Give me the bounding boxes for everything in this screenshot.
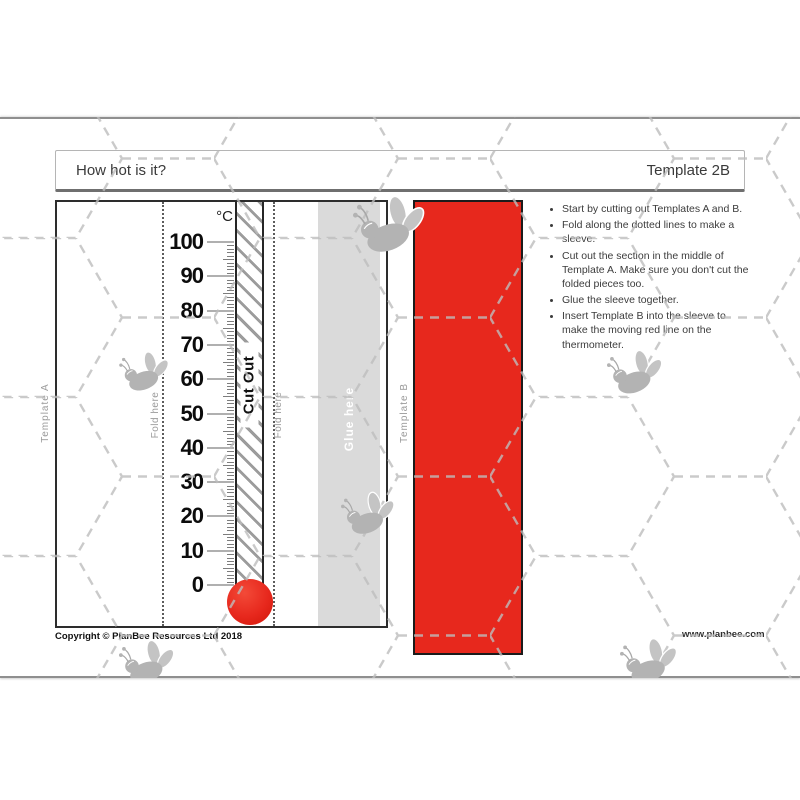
scale-minor-tick (227, 513, 234, 514)
scale-minor-tick (223, 328, 234, 329)
scale-minor-tick (227, 458, 234, 459)
scale-minor-tick (223, 362, 234, 363)
instruction-item: Glue the sleeve together. (562, 293, 750, 307)
scale-minor-tick (223, 568, 234, 569)
scale-minor-tick (227, 492, 234, 493)
scale-minor-tick (227, 575, 234, 576)
scale-degree-label: 70 (143, 331, 203, 359)
scale-minor-tick (227, 287, 234, 288)
scale-minor-tick (227, 389, 234, 390)
scale-minor-tick (227, 479, 234, 480)
scale-minor-tick (227, 537, 234, 538)
scale-minor-tick (227, 321, 234, 322)
scale-minor-tick (227, 249, 234, 250)
scale-minor-tick (227, 263, 234, 264)
scale-minor-tick (227, 407, 234, 408)
scale-minor-tick (227, 441, 234, 442)
scale-minor-tick (227, 506, 234, 507)
scale-minor-tick (227, 317, 234, 318)
scale-minor-tick (227, 280, 234, 281)
scale-minor-tick (227, 571, 234, 572)
scale-major-line (207, 413, 234, 415)
scale-minor-tick (227, 376, 234, 377)
scale-minor-tick (227, 444, 234, 445)
scale-minor-tick (227, 331, 234, 332)
instruction-item: Fold along the dotted lines to make a sl… (562, 218, 750, 246)
scale-minor-tick (227, 520, 234, 521)
scale-minor-tick (227, 352, 234, 353)
scale-minor-tick (227, 403, 234, 404)
scale-minor-tick (227, 424, 234, 425)
scale-minor-tick (227, 434, 234, 435)
scale-minor-tick (227, 314, 234, 315)
scale-minor-tick (227, 496, 234, 497)
scale-minor-tick (223, 396, 234, 397)
scale-minor-tick (227, 540, 234, 541)
scale-minor-tick (227, 462, 234, 463)
scale-minor-tick (227, 451, 234, 452)
scale-minor-tick (227, 393, 234, 394)
scale-minor-tick (227, 578, 234, 579)
scale-degree-label: 60 (143, 365, 203, 393)
scale-major-line (207, 550, 234, 552)
template-a-box: Glue here Fold here Fold here °C 1009080… (55, 200, 388, 628)
instructions-list: Start by cutting out Templates A and B. … (548, 202, 750, 354)
scale-minor-tick (227, 420, 234, 421)
scale-unit-label: °C (143, 208, 233, 225)
scale-minor-tick (227, 348, 234, 349)
scale-minor-tick (227, 438, 234, 439)
scale-degree-label: 0 (143, 571, 203, 599)
scale-major-line (207, 344, 234, 346)
template-a-label: Template A (39, 368, 53, 458)
template-b-red-strip (413, 200, 523, 655)
scale-minor-tick (227, 472, 234, 473)
instruction-item: Insert Template B into the sleeve to mak… (562, 309, 750, 352)
website-text: www.planbee.com (682, 629, 765, 640)
scale-minor-tick (227, 386, 234, 387)
worksheet-page: How hot is it? Template 2B Template A Gl… (0, 0, 800, 800)
scale-degree-label: 30 (143, 468, 203, 496)
scale-major-line (207, 378, 234, 380)
scale-degree-label: 20 (143, 502, 203, 530)
scale-minor-tick (227, 383, 234, 384)
scale-major-line (207, 310, 234, 312)
scale-minor-tick (227, 372, 234, 373)
scale-major-line (207, 447, 234, 449)
scale-minor-tick (227, 266, 234, 267)
scale-minor-tick (227, 355, 234, 356)
thermometer-bulb (227, 579, 273, 625)
copyright-text: Copyright © PlanBee Resources Ltd 2018 (55, 631, 242, 642)
scale-minor-tick (227, 273, 234, 274)
scale-major-line (207, 275, 234, 277)
scale-degree-label: 10 (143, 537, 203, 565)
scale-minor-tick (227, 489, 234, 490)
page-title: How hot is it? (76, 162, 166, 179)
scale-minor-tick (227, 283, 234, 284)
scale-minor-tick (227, 269, 234, 270)
scale-minor-tick (227, 365, 234, 366)
scale-minor-tick (227, 256, 234, 257)
instruction-item: Start by cutting out Templates A and B. (562, 202, 750, 216)
scale-minor-tick (227, 427, 234, 428)
scale-minor-tick (227, 527, 234, 528)
template-number-label: Template 2B (647, 162, 730, 179)
scale-minor-tick (223, 499, 234, 500)
scale-minor-tick (227, 400, 234, 401)
scale-minor-tick (223, 431, 234, 432)
scale-major-line (207, 241, 234, 243)
template-b-label: Template B (398, 368, 412, 458)
scale-minor-tick (227, 547, 234, 548)
scale-minor-tick (227, 530, 234, 531)
cut-out-label: Cut Out (241, 343, 259, 428)
scale-degree-label: 90 (143, 262, 203, 290)
scale-minor-tick (223, 259, 234, 260)
scale-minor-tick (227, 245, 234, 246)
scale-minor-tick (227, 544, 234, 545)
scale-minor-tick (227, 335, 234, 336)
scale-minor-tick (227, 341, 234, 342)
header-bar: How hot is it? Template 2B (55, 150, 745, 192)
scale-minor-tick (227, 300, 234, 301)
thermometer-scale: °C 1009080706050403020100 (57, 202, 386, 626)
scale-minor-tick (227, 252, 234, 253)
scale-minor-tick (227, 554, 234, 555)
scale-minor-tick (227, 558, 234, 559)
scale-minor-tick (223, 465, 234, 466)
scale-minor-tick (227, 582, 234, 583)
scale-minor-tick (227, 369, 234, 370)
scale-degree-label: 80 (143, 297, 203, 325)
scale-minor-tick (227, 503, 234, 504)
scale-minor-tick (227, 510, 234, 511)
scale-minor-tick (227, 307, 234, 308)
scale-minor-tick (227, 324, 234, 325)
scale-minor-tick (227, 561, 234, 562)
scale-minor-tick (227, 455, 234, 456)
scale-degree-label: 50 (143, 400, 203, 428)
scale-minor-tick (227, 297, 234, 298)
scale-minor-tick (227, 486, 234, 487)
scale-minor-tick (227, 417, 234, 418)
scale-minor-tick (227, 304, 234, 305)
scale-minor-tick (227, 338, 234, 339)
scale-minor-tick (227, 475, 234, 476)
instruction-item: Cut out the section in the middle of Tem… (562, 249, 750, 292)
scale-major-line (207, 584, 234, 586)
scale-minor-tick (227, 290, 234, 291)
scale-minor-tick (227, 359, 234, 360)
scale-degree-label: 100 (143, 228, 203, 256)
scale-minor-tick (227, 468, 234, 469)
scale-major-line (207, 481, 234, 483)
scale-degree-label: 40 (143, 434, 203, 462)
scale-minor-tick (223, 534, 234, 535)
scale-minor-tick (223, 293, 234, 294)
scale-major-line (207, 515, 234, 517)
scale-minor-tick (227, 564, 234, 565)
scale-minor-tick (227, 523, 234, 524)
scale-minor-tick (227, 410, 234, 411)
